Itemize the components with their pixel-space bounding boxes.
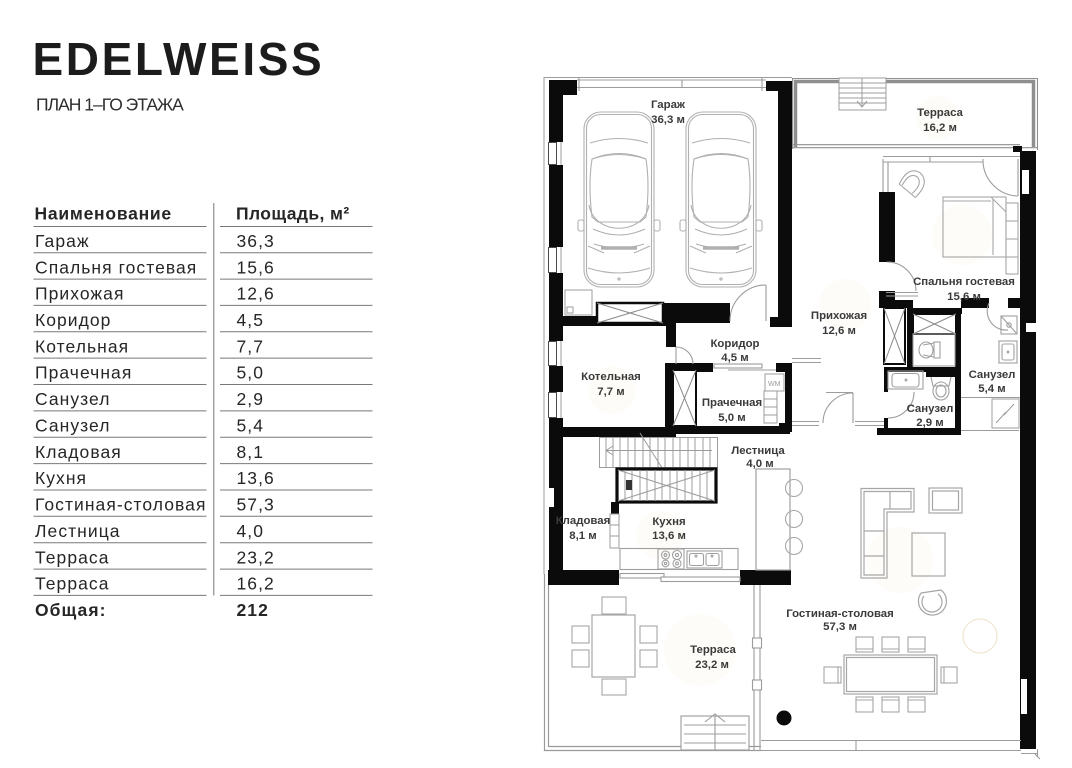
- svg-text:EDELWEISS: EDELWEISS: [33, 33, 325, 85]
- svg-text:4,5 м: 4,5 м: [721, 352, 748, 364]
- svg-text:Гараж: Гараж: [651, 99, 686, 111]
- svg-text:8,1: 8,1: [237, 442, 264, 462]
- svg-text:15,6: 15,6: [237, 257, 275, 277]
- svg-text:Лестница: Лестница: [35, 521, 121, 541]
- svg-text:12,6: 12,6: [237, 284, 275, 304]
- svg-text:Котельная: Котельная: [581, 371, 641, 383]
- svg-text:Лестница: Лестница: [731, 445, 785, 457]
- svg-text:Общая:: Общая:: [35, 600, 106, 620]
- svg-text:Терраса: Терраса: [35, 547, 109, 567]
- svg-text:15,6 м: 15,6 м: [947, 291, 981, 303]
- svg-text:212: 212: [237, 600, 269, 620]
- svg-text:16,2 м: 16,2 м: [923, 122, 957, 134]
- svg-text:36,3: 36,3: [237, 231, 275, 251]
- svg-text:5,0 м: 5,0 м: [718, 412, 745, 424]
- svg-text:8,1 м: 8,1 м: [569, 530, 596, 542]
- svg-text:Спальня гостевая: Спальня гостевая: [913, 276, 1015, 288]
- svg-text:Санузел: Санузел: [35, 416, 111, 436]
- svg-text:Кухня: Кухня: [35, 468, 87, 488]
- svg-text:Гараж: Гараж: [35, 231, 90, 251]
- svg-text:Терраса: Терраса: [35, 574, 109, 594]
- svg-text:2,9: 2,9: [237, 389, 264, 409]
- svg-text:Терраса: Терраса: [917, 107, 963, 119]
- svg-text:Прихожая: Прихожая: [811, 310, 867, 322]
- svg-text:Гостиная-столовая: Гостиная-столовая: [35, 495, 207, 515]
- svg-text:5,0: 5,0: [237, 363, 264, 383]
- svg-text:7,7 м: 7,7 м: [597, 386, 624, 398]
- svg-text:5,4: 5,4: [237, 416, 264, 436]
- svg-text:Прихожая: Прихожая: [35, 284, 125, 304]
- svg-text:Прачечная: Прачечная: [35, 363, 132, 383]
- svg-text:Санузел: Санузел: [907, 403, 954, 415]
- svg-text:Санузел: Санузел: [969, 369, 1016, 381]
- svg-text:Кладовая: Кладовая: [556, 515, 611, 527]
- svg-text:12,6 м: 12,6 м: [822, 325, 856, 337]
- svg-text:36,3 м: 36,3 м: [651, 114, 685, 126]
- svg-text:16,2: 16,2: [237, 574, 275, 594]
- svg-text:Наименование: Наименование: [35, 203, 172, 223]
- svg-text:Кухня: Кухня: [652, 516, 685, 528]
- svg-text:WM: WM: [768, 381, 781, 388]
- svg-text:Санузел: Санузел: [35, 389, 111, 409]
- svg-text:7,7: 7,7: [237, 336, 264, 356]
- svg-text:Коридор: Коридор: [710, 338, 759, 350]
- svg-text:5,4 м: 5,4 м: [978, 383, 1005, 395]
- svg-text:Коридор: Коридор: [35, 310, 111, 330]
- svg-text:Кладовая: Кладовая: [35, 442, 122, 462]
- svg-text:Терраса: Терраса: [690, 644, 736, 656]
- svg-text:57,3: 57,3: [237, 495, 275, 515]
- svg-text:Гостиная-столовая: Гостиная-столовая: [786, 608, 894, 620]
- svg-text:57,3 м: 57,3 м: [823, 621, 857, 633]
- svg-text:4,0 м: 4,0 м: [746, 458, 773, 470]
- svg-text:Прачечная: Прачечная: [702, 397, 762, 409]
- svg-text:23,2 м: 23,2 м: [695, 659, 729, 671]
- svg-text:23,2: 23,2: [237, 547, 275, 567]
- svg-text:Площадь, м²: Площадь, м²: [236, 203, 350, 223]
- svg-text:4,0: 4,0: [237, 521, 264, 541]
- svg-text:Котельная: Котельная: [35, 336, 129, 356]
- svg-text:Спальня гостевая: Спальня гостевая: [35, 257, 197, 277]
- svg-text:ПЛАН 1–ГО ЭТАЖА: ПЛАН 1–ГО ЭТАЖА: [36, 95, 184, 115]
- svg-text:2,9 м: 2,9 м: [916, 417, 943, 429]
- svg-text:13,6 м: 13,6 м: [652, 530, 686, 542]
- svg-text:13,6: 13,6: [237, 468, 275, 488]
- svg-text:4,5: 4,5: [237, 310, 264, 330]
